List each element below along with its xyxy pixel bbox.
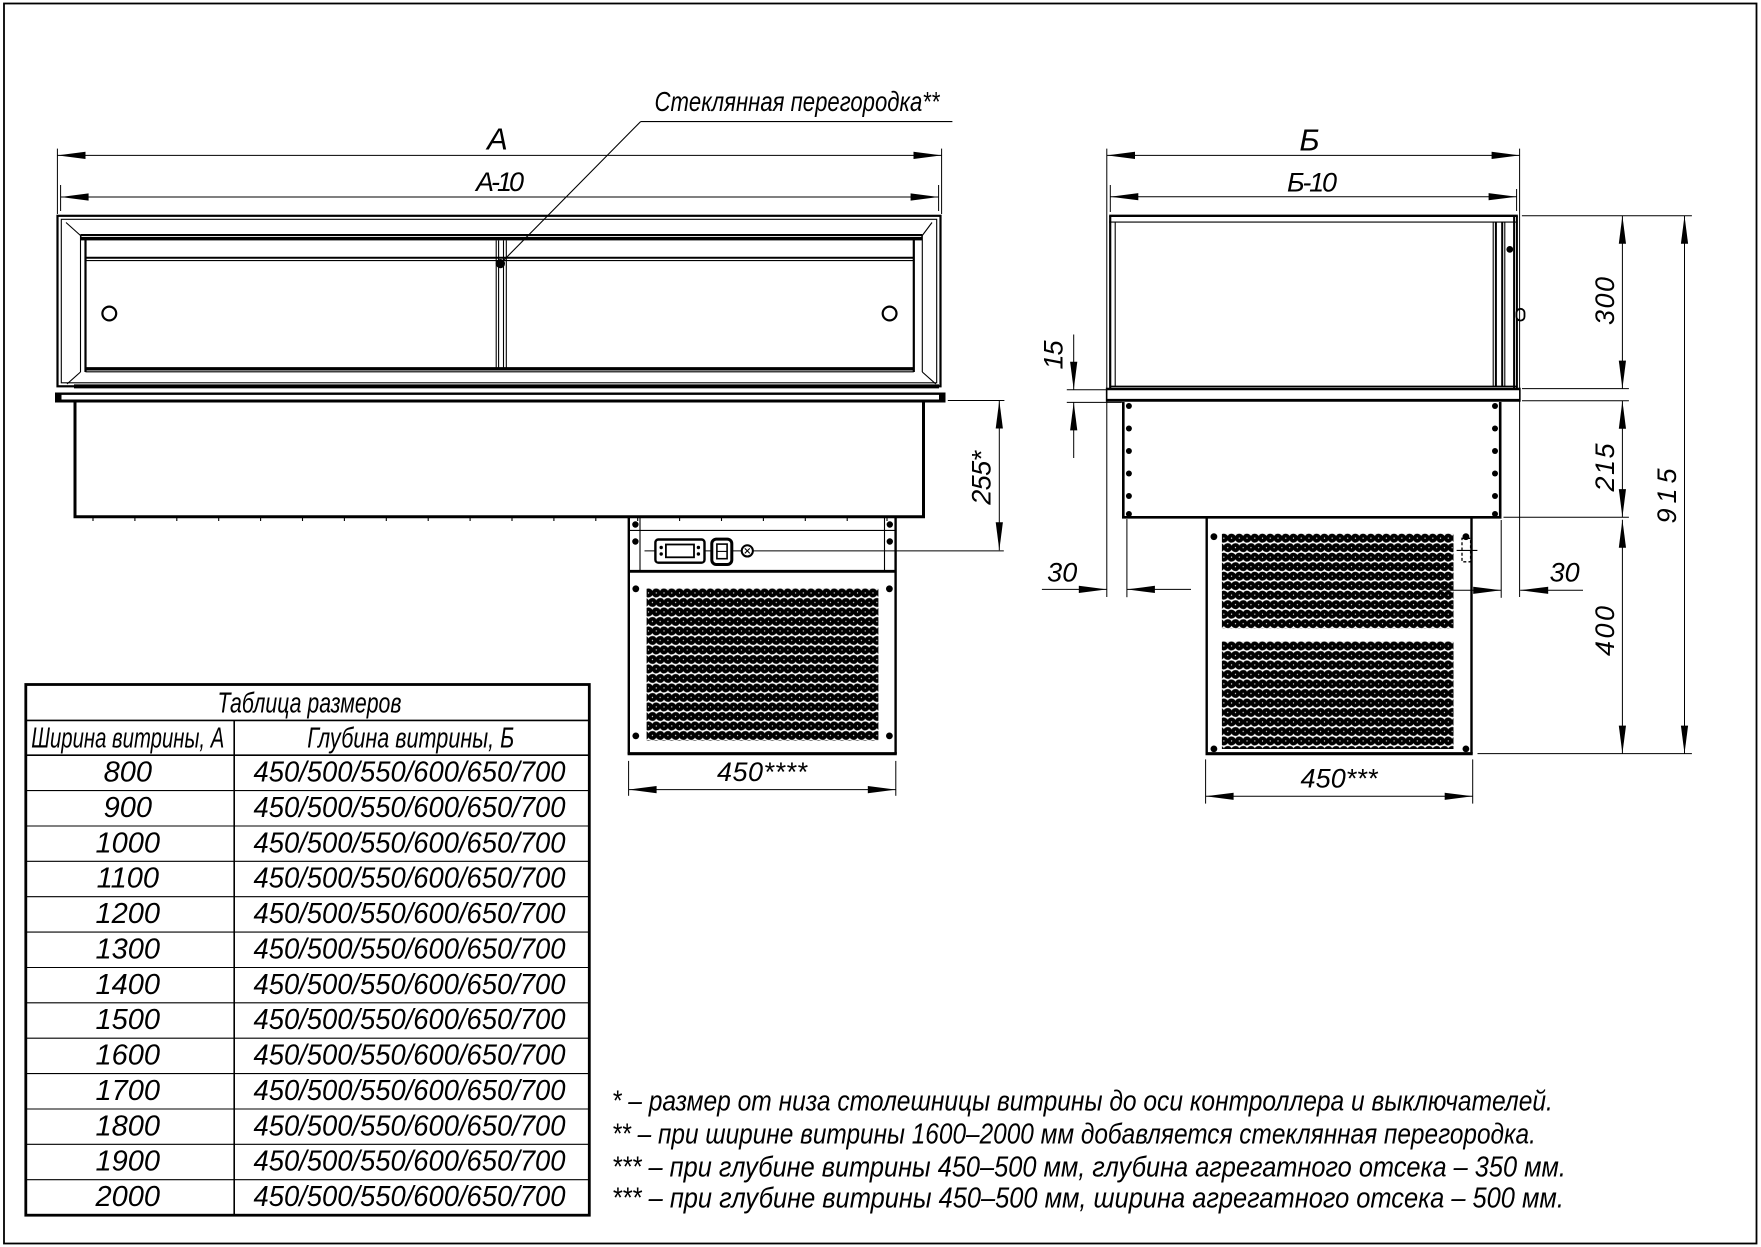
- svg-text:450/500/550/600/650/700: 450/500/550/600/650/700: [254, 1004, 566, 1036]
- svg-text:** – при ширине витрины 1600–2: ** – при ширине витрины 1600–2000 мм доб…: [612, 1119, 1536, 1151]
- svg-text:1000: 1000: [96, 827, 161, 859]
- svg-text:1700: 1700: [96, 1075, 161, 1107]
- svg-text:450***: 450***: [1301, 763, 1379, 793]
- svg-text:900: 900: [104, 792, 152, 824]
- svg-text:450****: 450****: [717, 757, 808, 787]
- svg-text:800: 800: [104, 757, 152, 789]
- svg-text:Таблица размеров: Таблица размеров: [218, 688, 402, 720]
- svg-text:Ширина витрины, А: Ширина витрины, А: [31, 723, 224, 755]
- svg-text:450/500/550/600/650/700: 450/500/550/600/650/700: [254, 757, 566, 789]
- svg-text:450/500/550/600/650/700: 450/500/550/600/650/700: [254, 969, 566, 1001]
- svg-text:1200: 1200: [96, 898, 161, 930]
- svg-text:450/500/550/600/650/700: 450/500/550/600/650/700: [254, 1146, 566, 1178]
- svg-text:450/500/550/600/650/700: 450/500/550/600/650/700: [254, 1040, 566, 1072]
- svg-text:300: 300: [1590, 277, 1620, 325]
- svg-text:А-10: А-10: [474, 167, 524, 197]
- svg-text:450/500/550/600/650/700: 450/500/550/600/650/700: [254, 792, 566, 824]
- svg-text:1600: 1600: [96, 1040, 161, 1072]
- svg-text:30: 30: [1047, 558, 1077, 588]
- svg-text:255*: 255*: [967, 449, 997, 505]
- svg-text:450/500/550/600/650/700: 450/500/550/600/650/700: [254, 827, 566, 859]
- svg-text:450/500/550/600/650/700: 450/500/550/600/650/700: [254, 898, 566, 930]
- svg-text:1400: 1400: [96, 969, 161, 1001]
- svg-text:Б-10: Б-10: [1287, 168, 1337, 198]
- svg-text:Глубина витрины, Б: Глубина витрины, Б: [307, 723, 514, 755]
- svg-text:*** – при глубине витрины 450–: *** – при глубине витрины 450–500 мм, ши…: [612, 1182, 1564, 1214]
- svg-text:450/500/550/600/650/700: 450/500/550/600/650/700: [254, 1110, 566, 1142]
- svg-text:1300: 1300: [96, 933, 161, 965]
- svg-text:1100: 1100: [97, 863, 159, 895]
- svg-text:215: 215: [1590, 443, 1620, 493]
- svg-text:1800: 1800: [96, 1110, 161, 1142]
- svg-text:1900: 1900: [96, 1146, 161, 1178]
- svg-text:2000: 2000: [95, 1181, 161, 1213]
- svg-text:450/500/550/600/650/700: 450/500/550/600/650/700: [254, 1181, 566, 1213]
- svg-text:Стеклянная перегородка**: Стеклянная перегородка**: [655, 86, 941, 117]
- svg-text:30: 30: [1550, 558, 1580, 588]
- svg-text:1500: 1500: [96, 1004, 161, 1036]
- svg-text:А: А: [485, 122, 508, 157]
- svg-text:15: 15: [1039, 340, 1069, 370]
- svg-text:Б: Б: [1299, 123, 1319, 158]
- svg-text:915: 915: [1652, 468, 1682, 524]
- svg-text:400: 400: [1590, 606, 1620, 656]
- svg-text:450/500/550/600/650/700: 450/500/550/600/650/700: [254, 1075, 566, 1107]
- svg-text:450/500/550/600/650/700: 450/500/550/600/650/700: [254, 933, 566, 965]
- svg-text:* – размер от низа столешницы: * – размер от низа столешницы витрины до…: [612, 1086, 1553, 1118]
- svg-text:450/500/550/600/650/700: 450/500/550/600/650/700: [254, 863, 566, 895]
- svg-text:*** – при глубине витрины 450–: *** – при глубине витрины 450–500 мм, гл…: [612, 1151, 1566, 1183]
